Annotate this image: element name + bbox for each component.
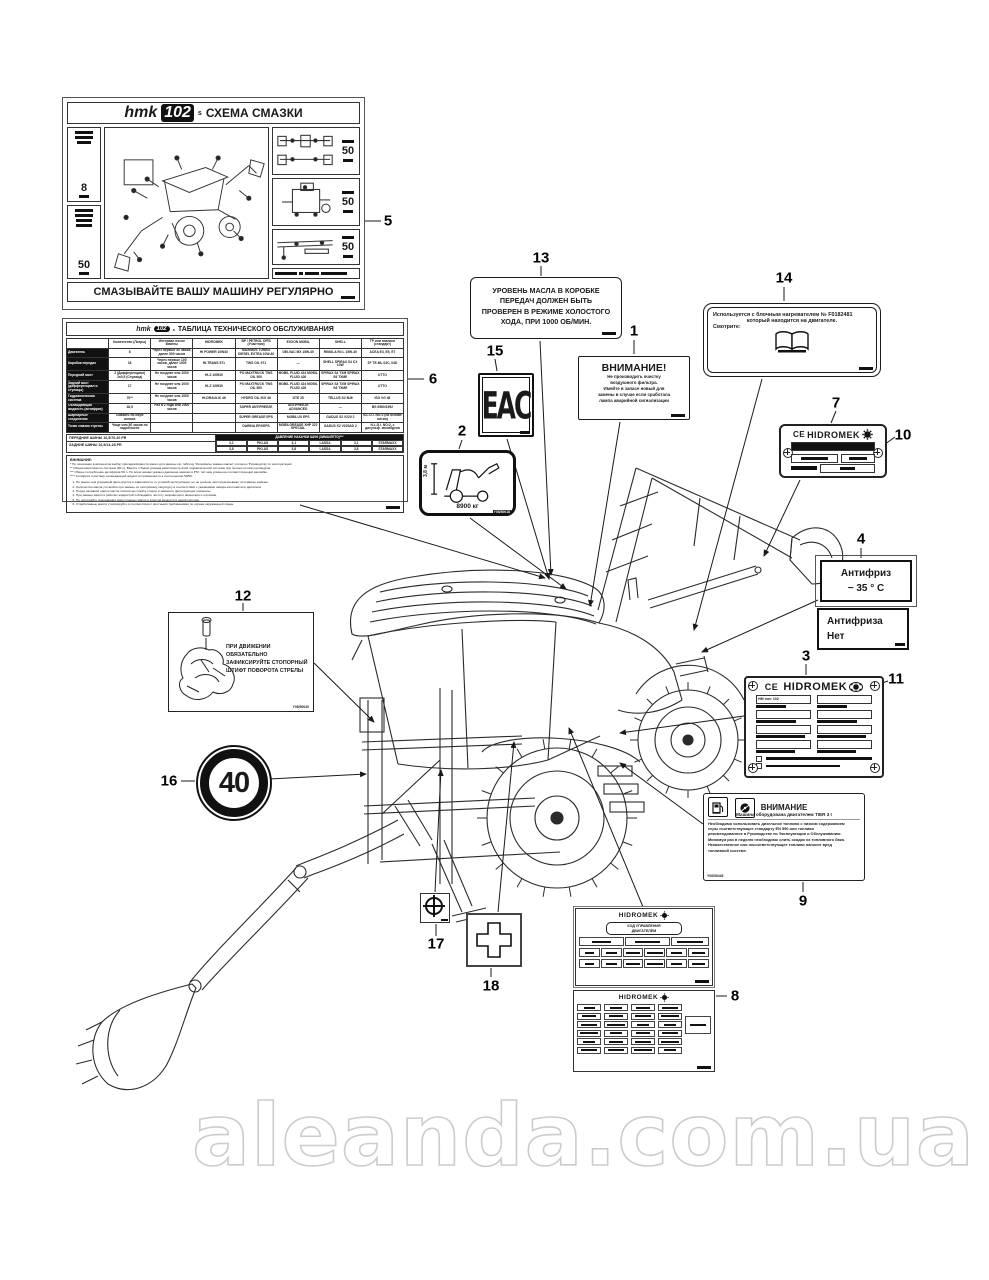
field-caption-bar [756,720,796,723]
pressure-cell: STARMAXX [372,446,403,452]
brand-text: hmk [136,326,150,333]
flowchart-box [604,1038,628,1045]
checkbox [756,756,762,762]
table-cell: Смазать по мере износа [109,413,151,423]
table-cell: HI-Z 10W30 [193,371,235,381]
code-cell [666,948,687,957]
flowchart-box [604,1047,628,1054]
interval-hours: 8 [81,182,87,194]
label-line: ШТИФТ ПОВОРОТА СТРЕЛЫ [226,667,308,675]
callout-5: 5 [384,213,392,230]
screw-icon [748,763,758,773]
table-cell: Чаще чем 50 часов по надобности [109,423,151,433]
table-cell: ISO VG 46 [361,394,403,404]
flowchart-box [577,1038,601,1045]
table-cell: MAXIMUS TURBO DIESEL EXTRA 10W-40 [235,348,277,358]
part-code-chip [695,980,709,983]
lubrication-machine-drawing [104,127,269,279]
flowchart-box [577,1013,601,1020]
part-code: Y08/50445 [707,874,723,878]
boom-lube-box: 50 [272,229,360,265]
table-cell: 16 [109,358,151,371]
field-caption-bar [756,735,805,738]
plate-field [841,454,875,463]
height-dimension: 3,8 м [423,465,429,477]
warning-body: Необходимо использовать дизельное топлив… [708,819,860,854]
code-cell [579,937,624,946]
air-filter-warning-label: ВНИМАНИЕ! Не производить очистку воздушн… [578,356,690,420]
antifreeze-none-label: Антифриза Нет [817,608,909,650]
table-column-header: Интервал после замены [151,339,193,349]
serial-plate-small: CE HIDROMEK [779,424,887,478]
table-row: Передний мост2 (Дифференциал) 2x0,5 (Сту… [67,371,404,381]
plate-field [817,710,872,719]
plate-field [817,740,872,749]
plate-field [817,725,872,734]
field-caption-bar [756,705,786,708]
table-cell: GADUS S2 V220 2 [319,413,361,423]
gearbox-oil-level-label: УРОВЕНЬ МАСЛА В КОРОБКЕ ПЕРЕДАЧ ДОЛЖЕН Б… [470,277,622,339]
code-cell [579,959,600,968]
code-cell [579,948,600,957]
table-cell: MOBILGREASE XHP 222 SPECIAL [277,423,319,433]
machine-dimensions-label: 3,8 м 8900 кг Y08/50018 [419,450,516,516]
gear-logo-icon [660,993,669,1002]
flowchart-column [631,1004,655,1054]
table-cell: BS 6580/1992 [361,403,403,413]
flowchart-box [658,1013,682,1020]
table-cell: GADUS S2 V220AD 2 [319,423,361,433]
callout-15: 15 [487,343,504,360]
lubrication-chart-footer: СМАЗЫВАЙТЕ ВАШУ МАШИНУ РЕГУЛЯРНО [67,282,360,302]
plate-field [820,464,875,473]
flowchart-box [631,1030,655,1037]
callout-17: 17 [428,936,445,953]
table-cell: ZF TE-ML 03C, 04D [361,358,403,371]
flowchart-box [577,1021,601,1028]
part-code: Y08/50040 [293,705,309,709]
first-aid-cross-label [466,913,522,967]
table-cell: 70** [109,394,151,404]
plate-field: HM тип: 102 [756,695,811,704]
code-cell [644,959,665,968]
table-cell: Охлаждающая жидкость (антифриз) [67,403,109,413]
callout-14: 14 [776,270,793,287]
table-cell: — [319,403,361,413]
lifting-point-label [420,893,450,923]
callout-8: 8 [731,988,739,1005]
interval-box-50h: 50 [67,205,101,280]
table-cell: Не позднее чем 1000 часов [151,371,193,381]
interval-hours: 50 [342,196,354,208]
brand-wordmark: HIDROMEK [619,994,658,1001]
note-line: **** Антифриз и раствор охлаждающей жидк… [70,474,400,478]
callout-7: 7 [832,395,840,412]
callout-2: 2 [458,423,466,440]
table-cell: SPIRAX S4 TXM SPIRAX S6 TXME [319,371,361,381]
table-cell: HI-Z 10W30 [193,381,235,394]
table-cell: Раз в 2 года или 2000 часов [151,403,193,413]
tires-pressure-strip: ПЕРЕДНИЕ ШИНЫ 16,5/70-20 PR ЗАДНИЕ ШИНЫ … [66,434,404,453]
pressure-cell: 3,8 [216,446,247,452]
ce-mark: CE [793,430,805,439]
table-row: Шарнирные соединенияСмазать по мере изно… [67,413,404,423]
code-cell [625,937,670,946]
table-cell: TWS OIL 971 [235,358,277,371]
table-cell: HI POWER 10W40 [193,348,235,358]
callout-4: 4 [857,531,865,548]
table-cell: DTE 25 [277,394,319,404]
table-cell: DELVAC MX 15W-40 [277,348,319,358]
code-cell [671,937,709,946]
plate-field [756,725,811,734]
table-cell: Передний мост [67,371,109,381]
brand-wordmark: HIDROMEK [807,430,860,440]
block-heater-label: Используется с блочным нагревателем № F0… [703,303,881,377]
callout-6: 6 [429,371,437,388]
screw-icon [870,763,880,773]
model-badge: 102 [161,104,194,122]
table-cell: PO MAXTRUCK TWS OIL 500 [235,381,277,394]
callout-18: 18 [483,978,500,995]
table-cell: Точки смазки стрелы [67,423,109,433]
axle-lube-box: 50 [272,127,360,175]
label-line: Смотрите: [713,324,871,330]
table-cell: 2 (Дифференциал) 2x0,5 (Ступица) [109,371,151,381]
plate-field-value: HM тип: 102 [757,696,810,703]
front-tires: ПЕРЕДНИЕ ШИНЫ 16,5/70-20 PR [67,435,215,442]
backhoe-loader-art [76,468,843,1090]
brand-text: hmk [124,104,157,122]
interval-hours: 50 [342,145,354,157]
table-cell: MOBILUX EPS [277,413,319,423]
warning-title: ВНИМАНИЕ! [579,362,689,374]
flowchart-box [658,1047,682,1054]
label-line: ЗАФИКСИРУЙТЕ СТОПОРНЫЙ [226,659,308,667]
cross-icon [468,915,520,965]
table-cell: HYDRO OIL ISO 46 [235,394,277,404]
part-code-chip [697,1066,711,1069]
table-row: Гидравлическая система70**Не позднее чем… [67,394,404,404]
table-cell: MOBIL FLUID 424 MOBIL FLUID 426 [277,371,319,381]
table-cell: MOBIL FLUID 424 MOBIL FLUID 426 [277,381,319,394]
table-cell: SPIRAX S4 TXM SPIRAX S6 TXME [319,381,361,394]
maintenance-table: Количество (Литры)Интервал после заменыH… [66,338,404,433]
label-line: − 35 ° C [822,581,910,596]
table-cell [193,413,235,423]
flowchart-box [658,1030,682,1037]
table-cell: N.L.G.I. NO:2, с дисульф. молибдена [361,423,403,433]
pressure-cell: 3,8 [278,446,309,452]
footer-text: СМАЗЫВАЙТЕ ВАШУ МАШИНУ РЕГУЛЯРНО [94,286,334,298]
table-cell: HI-TRANS 971 [193,358,235,371]
eac-mark: EAC [482,383,531,427]
model-badge: 102 [154,326,170,332]
plate-fields-right [817,693,872,755]
plate-field [756,740,811,749]
fuel-pump-icon [708,797,728,817]
code-cell [666,959,687,968]
lubrication-chart-label: hmk102s СХЕМА СМАЗКИ 8 50 [62,97,365,310]
table-row: Точки смазки стрелыЧаще чем 50 часов по … [67,423,404,433]
plate-field [791,454,838,463]
table-cell [151,423,193,433]
side-note-box [685,1016,711,1034]
model-suffix: s [198,110,202,117]
antifreeze-minus35-label: Антифриз − 35 ° C [820,560,912,602]
gear-logo-icon [862,429,873,440]
callout-11: 11 [888,671,904,688]
engine-control-code-label: HIDROMEK КОД УПРАВЛЕНИЯ ДВИГАТЕЛЕМ [575,908,713,986]
label-line: ПЕРЕДАЧ ДОЛЖЕН БЫТЬ [471,296,621,306]
lubrication-chart-title: СХЕМА СМАЗКИ [206,106,303,120]
gear-logo-icon [660,911,669,920]
maintenance-table-header: hmk102s ТАБЛИЦА ТЕХНИЧЕСКОГО ОБСЛУЖИВАНИ… [66,322,404,336]
table-cell: 18,5 [109,403,151,413]
table-column-header: SHELL [319,339,361,349]
ecu-box-line: ДВИГАТЕЛЕМ [607,929,681,934]
label-line: ХОДА, ПРИ 1000 ОБ/МИН. [471,317,621,327]
part-code-chip [386,506,400,509]
speed-limit-40-sign: 40 [196,745,272,821]
table-cell: ANTIFREEZE ADVANCED [277,403,319,413]
table-column-header [67,339,109,349]
table-row: Задний мост (дифференциал и ступицы)17Не… [67,381,404,394]
screw-icon [870,681,880,691]
table-cell: DARINA EP2/EPS [235,423,277,433]
flowchart-box [658,1021,682,1028]
table-cell: PO MAXTRUCK TWS OIL 500 [235,371,277,381]
pressure-cell: 3,8 [341,446,372,452]
table-cell: HI-DRAULIC 46 [193,394,235,404]
table-cell: SHELL SPIRAX S4 CX 10W [319,358,361,371]
field-caption-bar [817,735,866,738]
plate-field [756,710,811,719]
flowchart-column [604,1004,628,1054]
interval-column-left: 8 50 [67,127,101,279]
part-code-chip [895,643,905,646]
table-row: Охлаждающая жидкость (антифриз)18,5Раз в… [67,403,404,413]
flowchart-box [604,1021,628,1028]
code-cell [644,948,665,957]
callout-10: 10 [895,427,912,444]
maintenance-notes: ВНИМАНИЕ: * По окончании компонентов выб… [66,455,404,513]
part-code: Y08/50018 [493,510,511,514]
table-row: Двигатель8Через первые 50 часов, далее 5… [67,348,404,358]
table-cell: UTTO [361,381,403,394]
table-cell [193,423,235,433]
table-cell: UTTO [361,371,403,381]
brand-wordmark: HIDROMEK [619,912,658,919]
flowchart-box [658,1038,682,1045]
table-cell: TELLUS S2 B46 [319,394,361,404]
warning-line: топливной системе. [708,848,860,853]
callout-13: 13 [533,250,550,267]
part-code-chip [859,367,873,370]
serial-plate-main: CE HIDROMEK HM тип: 102 [744,676,884,778]
flowchart-box [604,1004,628,1011]
table-cell: Гидравлическая система [67,394,109,404]
code-cell [601,948,622,957]
rear-tires: ЗАДНИЕ ШИНЫ 16,9/14-28 PR [67,442,215,448]
table-cell: Задний мост (дифференциал и ступицы) [67,381,109,394]
manual-book-icon [775,331,809,353]
note-list-item: Отработанные масла утилизируйте в соотве… [76,502,400,506]
table-cell: Через первые 50 часов, далее 500 часов [151,348,193,358]
label-line: Нет [827,629,907,644]
weight-value: 8900 кг [422,503,513,510]
target-crosshair-icon [421,894,448,921]
table-column-header: BP / PETROL OFİS (Участник) [235,339,277,349]
interval-column-right: 50 50 [272,127,360,279]
table-cell: 8 [109,348,151,358]
table-cell [193,403,235,413]
speed-value: 40 [219,767,249,800]
pressure-cell: LASSA [309,446,340,452]
flowchart-box [631,1004,655,1011]
table-cell: — [277,358,319,371]
table-row: Коробка передач16Через первые 100 часов,… [67,358,404,371]
maintenance-table-label: hmk102s ТАБЛИЦА ТЕХНИЧЕСКОГО ОБСЛУЖИВАНИ… [62,318,408,502]
model-suffix: s [173,327,175,332]
label-line: Антифриза [827,614,907,629]
part-code-chip [520,431,530,434]
table-cell: SUPER ANTIFREEZE [235,403,277,413]
engine-lube-box: 50 [272,178,360,226]
table-column-header: Количество (Литры) [109,339,151,349]
code-cell [623,948,644,957]
gear-logo-icon [849,681,863,693]
field-caption-bar [817,720,857,723]
label-line: УРОВЕНЬ МАСЛА В КОРОБКЕ [471,286,621,296]
callout-12: 12 [235,588,252,605]
pressure-row: 3,8PKLAS3,8LASSA3,8STARMAXX [216,446,403,452]
field-caption-bar [817,705,847,708]
flowchart-box [604,1030,628,1037]
flowchart-box [631,1047,655,1054]
flowchart-box [577,1004,601,1011]
code-cell [601,959,622,968]
brand-wordmark: HIDROMEK [783,681,847,693]
eac-conformity-label: EAC [478,373,534,437]
field-caption-bar [756,750,795,753]
callout-3: 3 [802,648,810,665]
table-cell: Не позднее чем 1000 часов [151,381,193,394]
part-code-chip [341,296,355,299]
flowchart-box [631,1021,655,1028]
flowchart-box [658,1004,682,1011]
callout-9: 9 [799,893,807,910]
table-cell [151,413,193,423]
flowchart-box [577,1030,601,1037]
screw-icon [748,681,758,691]
legend-strip [272,268,360,279]
flowchart-column [577,1004,601,1054]
label-line: лампа аварийной сигнализации [579,398,689,404]
plate-field [817,695,872,704]
table-cell: SUPER GREASE EPS [235,413,277,423]
watermark: aleanda.com.ua [192,1086,975,1186]
table-cell: N.L.G.I. NO:2 (на основе лития) [361,413,403,423]
flowchart-box [577,1047,601,1054]
table-cell: RIMULA R4 L 15W-40 [319,348,361,358]
table-cell: 17 [109,381,151,394]
label-line: ПРИ ДВИЖЕНИИ ОБЯЗАТЕЛЬНО [226,643,308,659]
plate-fields-left: HM тип: 102 [756,693,811,755]
diagnostic-chart-label: HIDROMEK [573,990,715,1072]
interval-box-8h: 8 [67,127,101,202]
code-cell [688,948,709,957]
table-cell: Двигатель [67,348,109,358]
code-cell [623,959,644,968]
table-column-header: ТР или аналоги (стандарт) [361,339,403,349]
interval-hours: 50 [78,259,90,271]
boom-lock-pin-label: ПРИ ДВИЖЕНИИ ОБЯЗАТЕЛЬНО ЗАФИКСИРУЙТЕ СТ… [168,612,314,712]
table-cell: Шарнирные соединения [67,413,109,423]
field-caption-bar [817,750,856,753]
label-line: ПРОВЕРЕН В РЕЖИМЕ ХОЛОСТОГО [471,307,621,317]
maintenance-table-title: ТАБЛИЦА ТЕХНИЧЕСКОГО ОБСЛУЖИВАНИЯ [178,326,334,333]
table-cell: Через первые 100 часов, далее 1000 часов [151,358,193,371]
part-code-chip [602,332,616,335]
table-column-header: EXXON MOBIL [277,339,319,349]
flowchart-column [658,1004,682,1054]
ce-mark: CE [765,682,779,692]
plate-field [791,442,875,451]
table-column-header: HIDROMEK [193,339,235,349]
label-line: Антифриз [822,566,910,581]
table-cell: Коробка передач [67,358,109,371]
interval-hours: 50 [342,241,354,253]
table-cell: Не позднее чем 1000 часов [151,394,193,404]
flowchart-box [631,1013,655,1020]
callout-16: 16 [161,773,178,790]
pressure-cell: PKLAS [247,446,278,452]
fuel-warning-label: ВНИМАНИЕ Машина оборудована двигателем T… [703,793,865,881]
part-code-chip [441,919,448,921]
callout-1: 1 [630,323,638,340]
decal-location-diagram-page: { "watermark": {"text": "aleanda.com.ua"… [0,0,989,1280]
lubrication-chart-header: hmk102s СХЕМА СМАЗКИ [67,102,360,124]
table-cell: ACEA E3, E5, E7 [361,348,403,358]
code-cell [688,959,709,968]
flowchart-box [604,1013,628,1020]
flowchart-box [631,1038,655,1045]
part-code-chip [671,414,685,417]
